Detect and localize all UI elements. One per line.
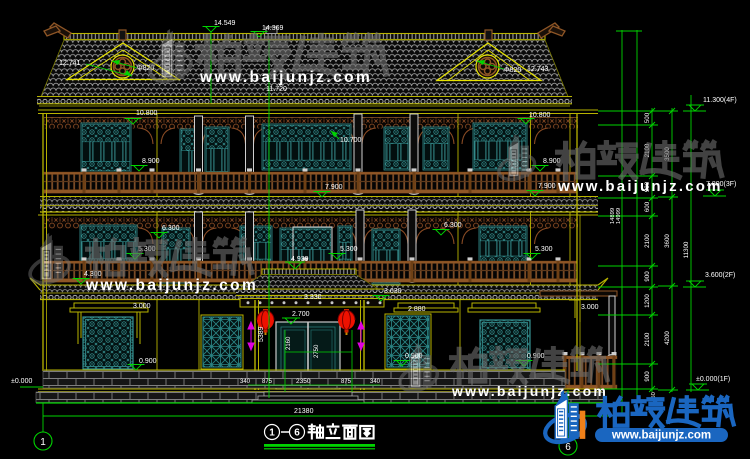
svg-text:10.800: 10.800	[136, 110, 158, 117]
svg-text:www.baijunjz.com: www.baijunjz.com	[199, 69, 372, 86]
svg-text:2100: 2100	[644, 234, 651, 248]
svg-text:10.700: 10.700	[340, 137, 362, 144]
svg-text:www.baijunjz.com: www.baijunjz.com	[85, 277, 258, 294]
svg-text:14999: 14999	[616, 208, 622, 224]
svg-text:5.300: 5.300	[340, 246, 358, 253]
svg-text:875: 875	[341, 379, 352, 385]
svg-text:2.700: 2.700	[292, 311, 310, 318]
svg-text:1200: 1200	[644, 294, 651, 308]
svg-text:12.743: 12.743	[527, 66, 549, 73]
svg-text:Φ820: Φ820	[504, 67, 521, 74]
svg-text:3.000: 3.000	[581, 304, 599, 311]
svg-text:3.000: 3.000	[133, 303, 151, 310]
svg-text:2350: 2350	[296, 378, 311, 385]
svg-text:www.baijunjz.com: www.baijunjz.com	[451, 383, 608, 399]
svg-text:11.300(4F): 11.300(4F)	[703, 97, 737, 104]
svg-text:7.900: 7.900	[538, 183, 556, 190]
svg-text:3.600(2F): 3.600(2F)	[705, 272, 735, 279]
svg-text:±0.000: ±0.000	[11, 378, 32, 385]
svg-text:±0.000(1F): ±0.000(1F)	[696, 376, 730, 383]
svg-text:1: 1	[269, 428, 275, 439]
svg-text:3.330: 3.330	[304, 294, 322, 301]
svg-text:2100: 2100	[644, 332, 651, 346]
svg-text:6.300: 6.300	[444, 222, 462, 229]
svg-text:3600: 3600	[664, 234, 671, 248]
svg-text:7.900: 7.900	[325, 184, 343, 191]
svg-text:4200: 4200	[664, 331, 671, 345]
svg-text:2750: 2750	[314, 344, 320, 358]
svg-text:12.741: 12.741	[59, 60, 81, 67]
svg-text:3.630: 3.630	[384, 288, 402, 295]
svg-text:11.720: 11.720	[266, 86, 287, 93]
svg-text:14.369: 14.369	[262, 25, 284, 32]
svg-text:0.900: 0.900	[139, 358, 157, 365]
svg-text:600: 600	[644, 201, 651, 212]
svg-text:340: 340	[240, 379, 251, 385]
svg-text:500: 500	[644, 112, 651, 123]
svg-text:www.baijunjz.com: www.baijunjz.com	[557, 178, 723, 195]
svg-text:6: 6	[565, 442, 571, 453]
svg-text:1: 1	[40, 437, 46, 448]
svg-text:www.baijunjz.com: www.baijunjz.com	[611, 430, 711, 442]
svg-text:5.300: 5.300	[535, 246, 553, 253]
svg-text:11300: 11300	[683, 241, 690, 258]
svg-text:5389: 5389	[258, 326, 265, 342]
svg-text:6.300: 6.300	[162, 225, 180, 232]
svg-text:2.880: 2.880	[408, 306, 426, 313]
svg-text:2160: 2160	[286, 336, 292, 350]
svg-text:875: 875	[262, 379, 273, 385]
svg-text:14.549: 14.549	[214, 20, 236, 27]
svg-text:8.900: 8.900	[142, 158, 160, 165]
svg-text:10.800: 10.800	[529, 112, 551, 119]
svg-text:340: 340	[370, 379, 381, 385]
svg-text:900: 900	[644, 271, 651, 282]
svg-text:900: 900	[644, 371, 651, 382]
svg-text:21380: 21380	[294, 408, 314, 415]
svg-text:6: 6	[294, 428, 300, 439]
